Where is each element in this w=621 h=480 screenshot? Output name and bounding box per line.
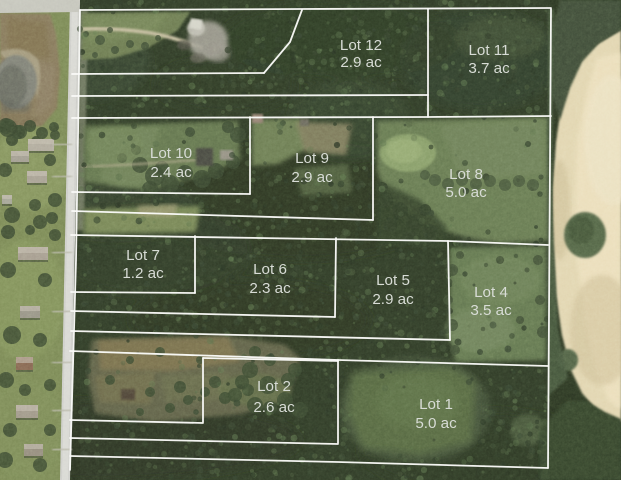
svg-text:Lot 7: Lot 7	[126, 247, 160, 264]
svg-text:2.6 ac: 2.6 ac	[253, 399, 295, 416]
svg-text:2.4 ac: 2.4 ac	[150, 164, 192, 181]
svg-text:2.3 ac: 2.3 ac	[249, 280, 291, 297]
svg-text:Lot 11: Lot 11	[468, 42, 509, 59]
svg-text:Lot 10: Lot 10	[150, 145, 192, 162]
svg-text:5.0 ac: 5.0 ac	[415, 415, 457, 432]
svg-text:2.9 ac: 2.9 ac	[372, 291, 414, 308]
svg-text:3.7 ac: 3.7 ac	[468, 60, 510, 77]
svg-text:Lot 1: Lot 1	[419, 396, 453, 413]
svg-text:5.0 ac: 5.0 ac	[445, 184, 487, 201]
svg-text:Lot 4: Lot 4	[474, 284, 508, 301]
svg-text:Lot 6: Lot 6	[253, 261, 287, 278]
svg-text:Lot 8: Lot 8	[449, 166, 483, 183]
svg-text:Lot 12: Lot 12	[340, 37, 382, 54]
svg-text:3.5 ac: 3.5 ac	[470, 302, 512, 319]
svg-text:Lot 2: Lot 2	[257, 378, 291, 395]
svg-text:1.2 ac: 1.2 ac	[122, 265, 164, 282]
svg-text:2.9 ac: 2.9 ac	[291, 169, 333, 186]
svg-text:Lot 5: Lot 5	[376, 272, 410, 289]
svg-text:2.9 ac: 2.9 ac	[340, 54, 382, 71]
svg-text:Lot 9: Lot 9	[295, 150, 329, 167]
